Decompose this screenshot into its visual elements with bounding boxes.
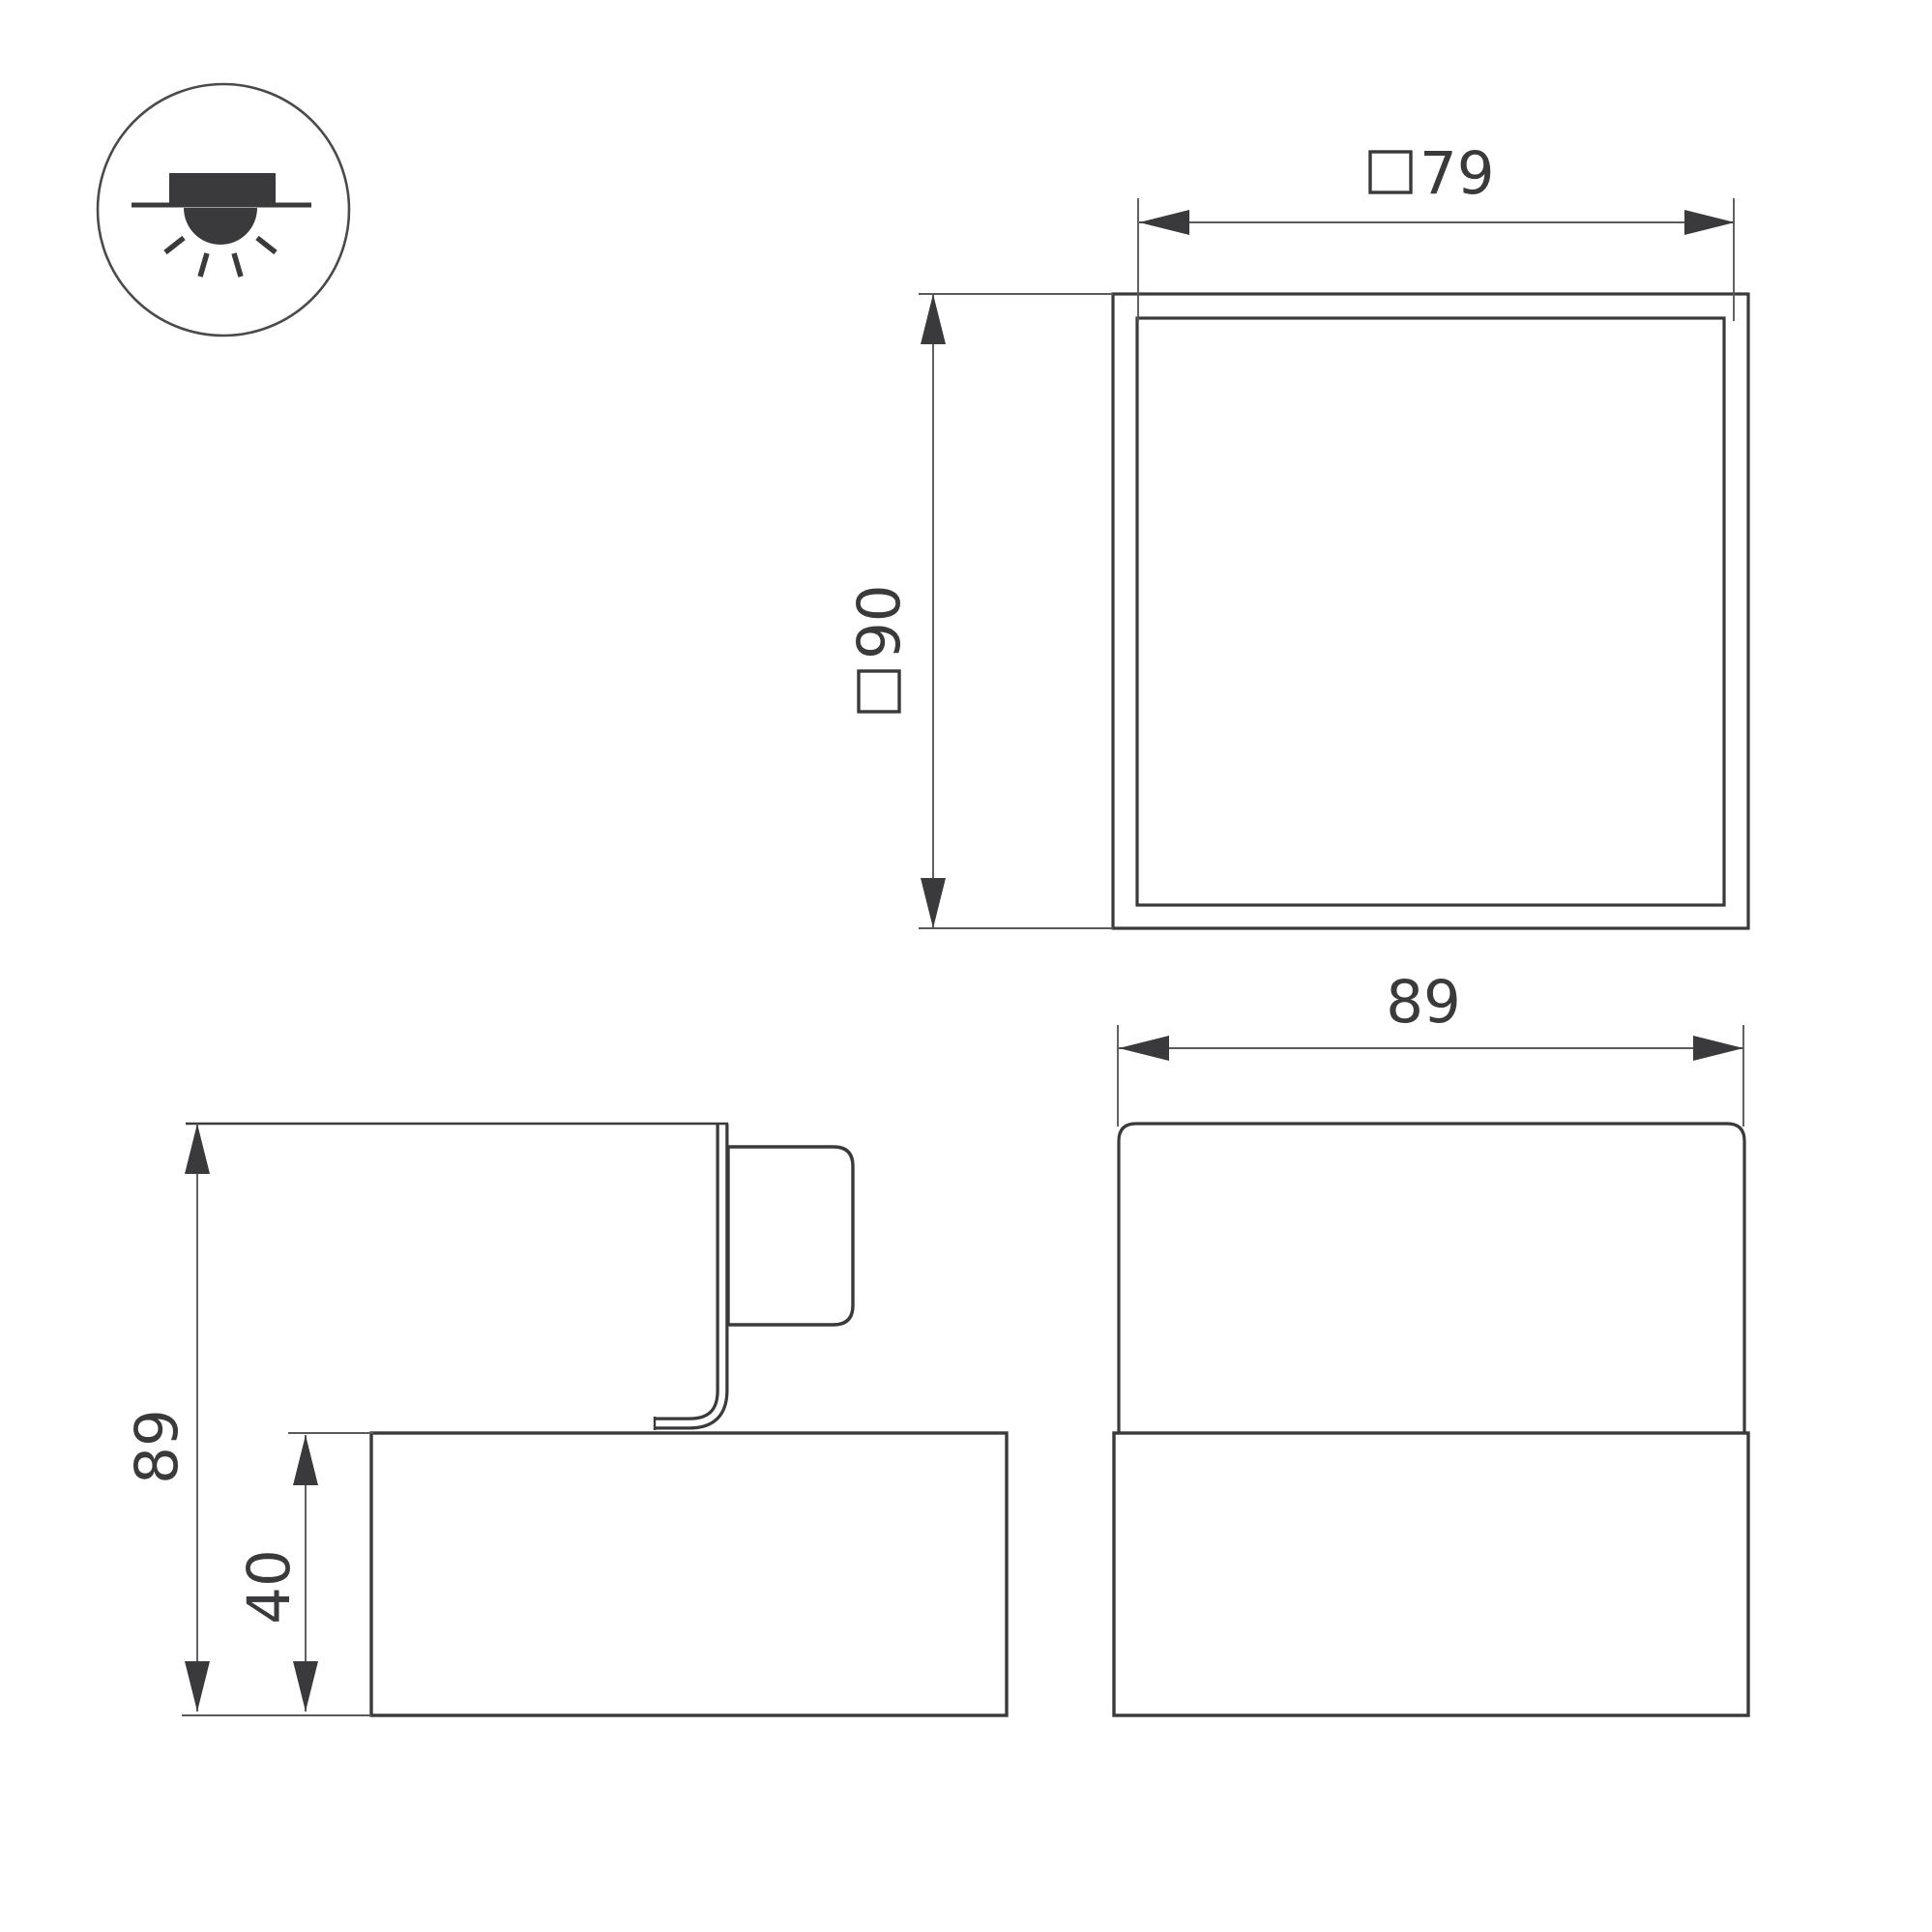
dim-label: 89 [123, 1409, 191, 1484]
square-symbol [1370, 152, 1411, 192]
dim-label: 79 [1420, 139, 1495, 208]
dim-front-width: 89 [1118, 968, 1743, 1127]
arrowhead-up [185, 1124, 210, 1174]
front-view: 89 [1114, 968, 1748, 1715]
arrowhead-down [293, 1661, 318, 1712]
top-view-outer-square [1113, 294, 1748, 928]
drawing-page: 79 90 [0, 0, 1932, 1932]
side-bracket-core [655, 1124, 722, 1423]
top-view: 79 90 [845, 139, 1748, 928]
dim-side-base-height: 40 [235, 1433, 373, 1712]
side-driver-box [728, 1147, 853, 1325]
top-view-inner-square [1137, 318, 1724, 905]
dim-top-outer-size: 90 [845, 294, 1113, 928]
dim-label: 40 [235, 1549, 304, 1625]
dim-label: 90 [845, 584, 914, 659]
front-head-outline [1119, 1124, 1744, 1434]
arrowhead-down [185, 1661, 210, 1712]
arrowhead-left [1119, 1036, 1169, 1061]
dimension-drawing-svg: 79 90 [0, 0, 1932, 1932]
icon-light-dome [184, 208, 257, 245]
dim-side-height: 89 [123, 1124, 371, 1715]
side-view: 89 40 [123, 1124, 1007, 1715]
arrowhead-up [293, 1435, 318, 1485]
side-bracket-outline [655, 1124, 722, 1423]
dim-label: 89 [1386, 968, 1461, 1037]
icon-lamp-body [169, 173, 276, 205]
arrowhead-right [1684, 210, 1735, 235]
arrowhead-right [1693, 1036, 1743, 1061]
rotated-dim-label-group: 90 [845, 584, 914, 712]
arrowhead-left [1139, 210, 1189, 235]
rotated-dim-label-group: 40 [235, 1549, 304, 1625]
mount-type-icon [98, 84, 349, 336]
side-base-box [371, 1433, 1007, 1715]
rotated-dim-label-group: 89 [123, 1409, 191, 1484]
front-base-box [1114, 1433, 1748, 1715]
arrowhead-up [921, 294, 946, 344]
arrowhead-down [921, 878, 946, 928]
square-symbol [859, 671, 899, 712]
